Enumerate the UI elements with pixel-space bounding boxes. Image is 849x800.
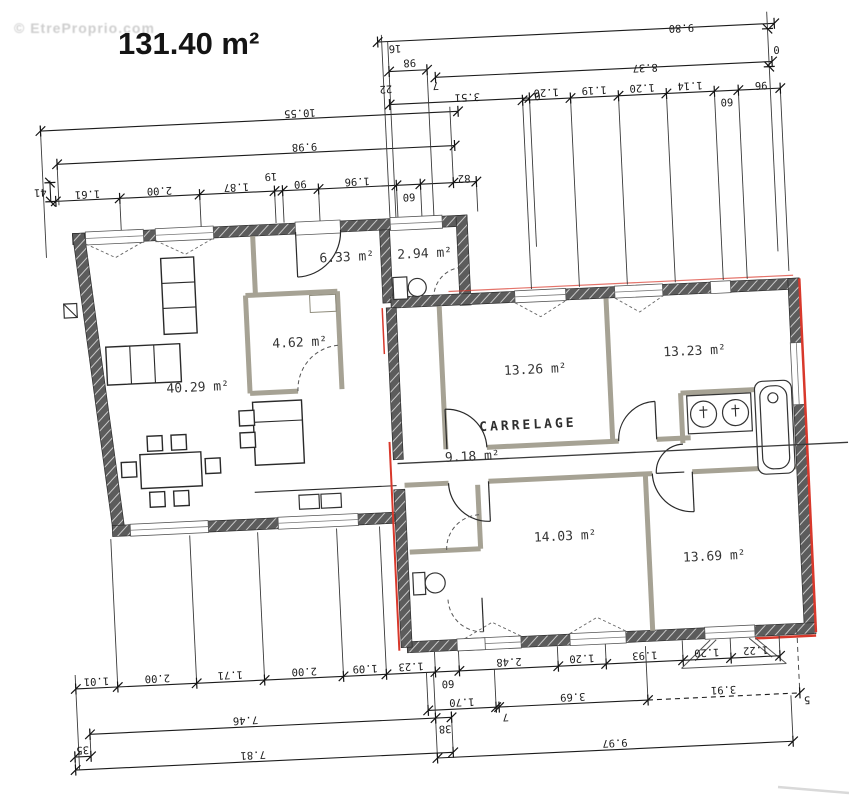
window-swing	[615, 296, 664, 313]
window-swing	[515, 300, 567, 317]
dim-label: 2.00	[146, 184, 172, 197]
chair	[171, 435, 187, 451]
dim-label: 16	[388, 42, 401, 55]
shelf	[310, 294, 337, 312]
room-label-bedroom2: 13.23 m²	[663, 342, 726, 360]
dim-label: 22	[379, 82, 392, 95]
dim-label: 1.96	[344, 175, 370, 188]
dim-label: 1.01	[84, 674, 110, 687]
bedroom2-door-arc	[617, 401, 657, 441]
dim-label: 9.80	[668, 21, 694, 34]
kitchen-counter	[255, 486, 397, 493]
kitchen-island	[252, 400, 304, 465]
toilet-bowl	[425, 572, 446, 593]
room-label-hall-floor: CARRELAGE	[479, 416, 577, 436]
floor-plan-page: © EtreProprio.com 131.40 m²	[0, 0, 849, 800]
dim-label: 7.46	[233, 713, 259, 726]
dim-label: 1.93	[632, 649, 658, 662]
bedroom4-door-arc	[652, 472, 694, 514]
dim-label: 82	[458, 172, 471, 185]
dim-label: 8.37	[632, 61, 658, 74]
wc2-door-arc	[448, 598, 484, 634]
window-swing	[464, 621, 521, 639]
dim-label: 1.23	[398, 660, 424, 673]
dim-label: 90	[294, 178, 307, 191]
wall-middle-shared	[386, 307, 403, 459]
bathroom-door-arc	[655, 444, 684, 473]
dim-label: 1.20	[569, 652, 595, 665]
kitchen-sink	[321, 493, 342, 508]
toilet-tank	[413, 572, 426, 595]
dim-label: 5	[804, 693, 811, 705]
room-label-bedroom3: 14.03 m²	[534, 528, 597, 546]
dim-label: 3.91	[711, 683, 737, 696]
dim-label: 1.19	[581, 83, 607, 96]
bathtub-drain	[768, 393, 778, 403]
wall-wc-left	[380, 230, 393, 303]
toilet-bowl	[408, 278, 427, 297]
wall-left-lower-wing	[394, 489, 412, 647]
dim-label: 3.51	[454, 90, 480, 103]
dim-label: 1.09	[352, 662, 378, 675]
dim-label: 1.87	[223, 180, 249, 193]
dim-label: 1.70	[449, 695, 475, 708]
floor-plan-svg: 9.80 8.37 16 98 22 7 3.51 0 1.20 1.19 1.…	[0, 0, 849, 800]
dim-label: 7.81	[240, 748, 266, 761]
dim-label: 1.71	[217, 668, 243, 681]
red-accent	[382, 308, 384, 354]
dim-label: 60	[720, 95, 733, 108]
dim-label: 1.20	[629, 81, 655, 94]
entry-door-leaf	[296, 232, 298, 277]
dim-label: 2.00	[291, 665, 317, 678]
dim-label: 38	[438, 722, 451, 735]
room-label-storage: 4.62 m²	[272, 334, 327, 352]
window-swing	[569, 616, 626, 634]
sofa	[106, 344, 182, 385]
dim-label: 60	[402, 190, 415, 203]
window	[457, 638, 486, 651]
dim-label: 2.48	[496, 655, 522, 668]
dim-label: 10.55	[284, 106, 316, 119]
stool	[240, 432, 256, 448]
dim-label: 9.98	[292, 140, 318, 153]
dim-label: 7	[502, 711, 509, 723]
dim-label: 98	[403, 56, 416, 69]
dim-label: 3.69	[560, 690, 586, 703]
dim-label: 19	[264, 170, 277, 183]
toilet-tank	[393, 277, 408, 300]
dim-label: 41	[34, 186, 47, 199]
kitchen-sink	[299, 494, 320, 509]
dim-label: 9.97	[602, 736, 628, 749]
entry-door-opening	[295, 220, 341, 235]
storage-door-arc	[296, 345, 342, 391]
dim-label: 60	[441, 677, 454, 690]
room-label-entry: 6.33 m²	[319, 249, 374, 267]
window	[710, 281, 731, 294]
room-label-wc: 2.94 m²	[397, 245, 452, 263]
chair	[147, 436, 163, 452]
dim-label: 96	[755, 79, 768, 92]
room-label-bedroom4: 13.69 m²	[683, 548, 746, 566]
dim-label: 2.00	[144, 672, 170, 685]
wall-top-right-wing	[391, 278, 800, 308]
fixtures	[393, 259, 801, 595]
dim-label: 1.61	[75, 187, 101, 200]
dim-label: 1.20	[533, 86, 559, 99]
stool	[239, 410, 255, 426]
chair	[205, 458, 221, 474]
chair	[174, 490, 190, 506]
chair	[121, 462, 137, 478]
room-label-hall: 9.18 m²	[445, 448, 500, 466]
dim-label: 1.14	[677, 79, 703, 92]
dim-label: 35	[76, 743, 89, 756]
dining-table	[140, 452, 203, 489]
dim-label: 1.20	[694, 646, 720, 659]
dim-label: 7	[432, 79, 439, 91]
sofa	[161, 257, 198, 334]
corner-artifact	[778, 787, 849, 793]
dim-label: 0	[773, 43, 780, 55]
chair	[150, 492, 166, 508]
dim-label: 1.22	[743, 643, 769, 656]
closet-door-arc	[445, 515, 481, 551]
plan: 9.80 8.37 16 98 22 7 3.51 0 1.20 1.19 1.…	[27, 9, 849, 781]
room-label-living: 40.29 m²	[166, 379, 229, 397]
room-label-bedroom1: 13.26 m²	[504, 361, 567, 379]
wall-entry-right	[456, 215, 471, 305]
